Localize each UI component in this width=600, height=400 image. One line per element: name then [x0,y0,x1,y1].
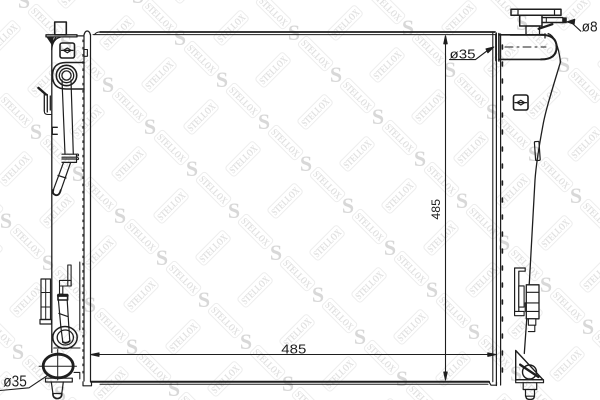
svg-text:ø35: ø35 [3,374,27,391]
svg-text:485: 485 [281,342,306,356]
svg-text:485: 485 [431,199,443,220]
svg-text:ø8: ø8 [582,19,598,35]
svg-text:ø35: ø35 [450,46,476,61]
